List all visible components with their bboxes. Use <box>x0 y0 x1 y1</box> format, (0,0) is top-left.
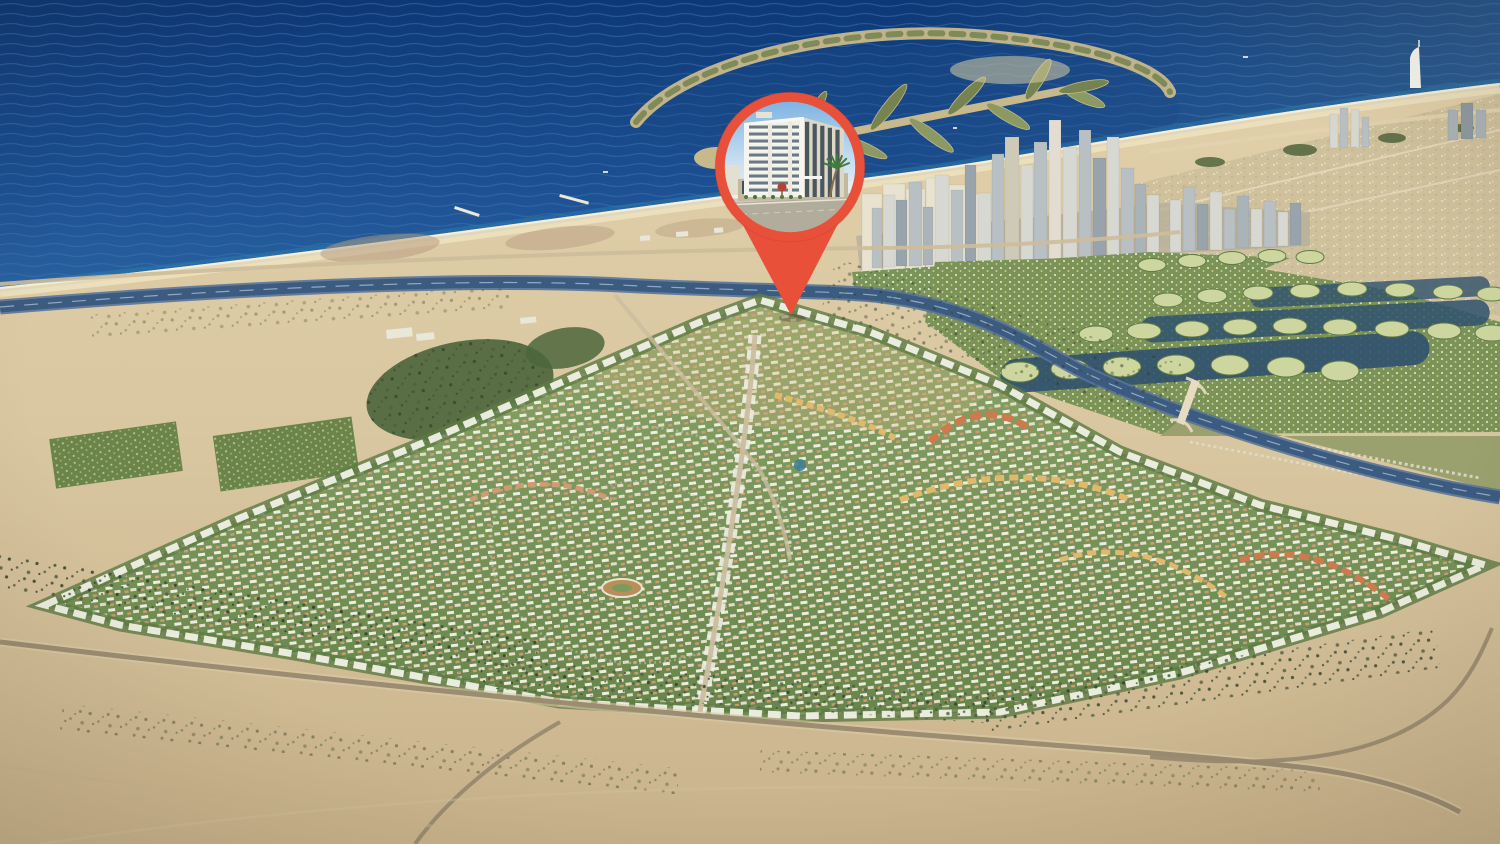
masterplan-aerial-map <box>0 0 1500 844</box>
flowering-tree <box>778 183 787 192</box>
aerial-scene <box>0 0 1500 844</box>
entrance-canopy <box>804 176 822 179</box>
pin-shadow <box>779 314 805 322</box>
